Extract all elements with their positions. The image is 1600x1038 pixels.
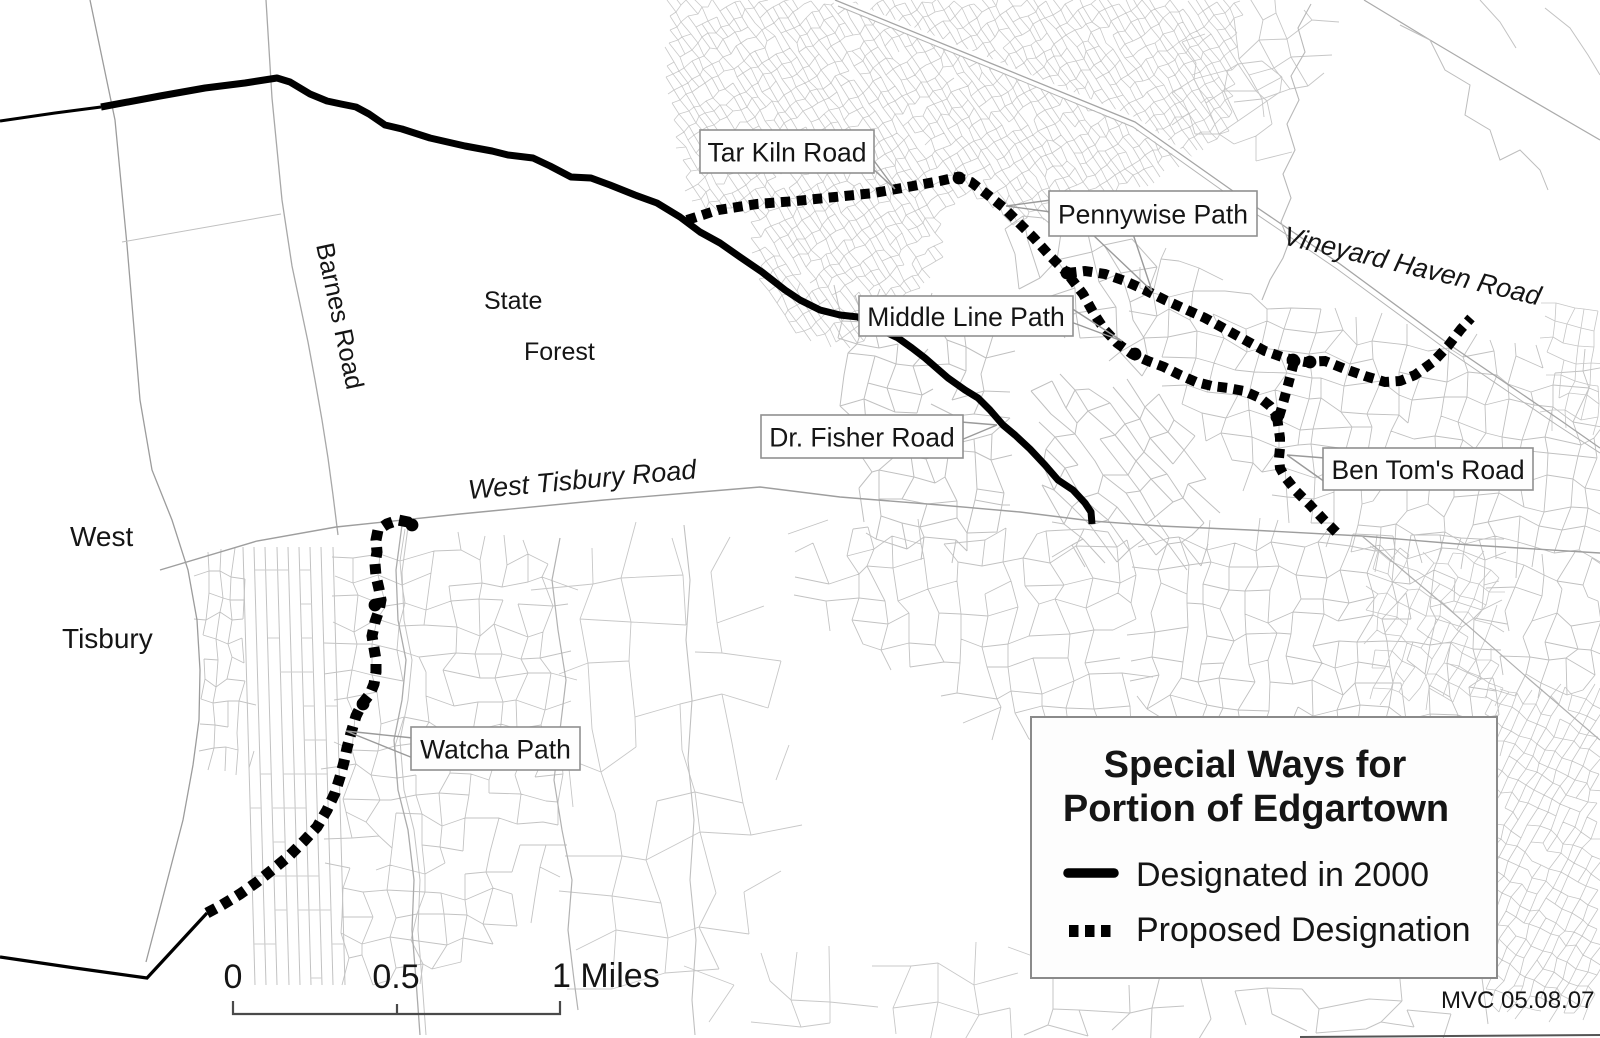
svg-text:0: 0 xyxy=(224,958,243,996)
svg-text:Middle Line Path: Middle Line Path xyxy=(867,302,1064,332)
svg-text:Ben Tom's Road: Ben Tom's Road xyxy=(1331,455,1524,485)
svg-text:Proposed Designation: Proposed Designation xyxy=(1136,911,1471,949)
svg-text:Designated in 2000: Designated in 2000 xyxy=(1136,856,1429,894)
svg-text:West: West xyxy=(70,521,133,552)
svg-text:Portion of Edgartown: Portion of Edgartown xyxy=(1063,788,1449,830)
svg-text:State: State xyxy=(484,287,542,315)
svg-text:Watcha Path: Watcha Path xyxy=(420,734,571,764)
svg-text:0.5: 0.5 xyxy=(372,958,419,996)
svg-text:1 Miles: 1 Miles xyxy=(552,957,660,995)
svg-text:Tar Kiln Road: Tar Kiln Road xyxy=(707,137,866,167)
svg-text:Pennywise Path: Pennywise Path xyxy=(1058,199,1248,229)
svg-text:Tisbury: Tisbury xyxy=(62,623,153,654)
svg-text:MVC 05.08.07: MVC 05.08.07 xyxy=(1441,987,1594,1014)
svg-text:Dr. Fisher Road: Dr. Fisher Road xyxy=(769,422,955,452)
svg-text:Special Ways for: Special Ways for xyxy=(1104,744,1407,786)
svg-text:Forest: Forest xyxy=(524,338,595,366)
